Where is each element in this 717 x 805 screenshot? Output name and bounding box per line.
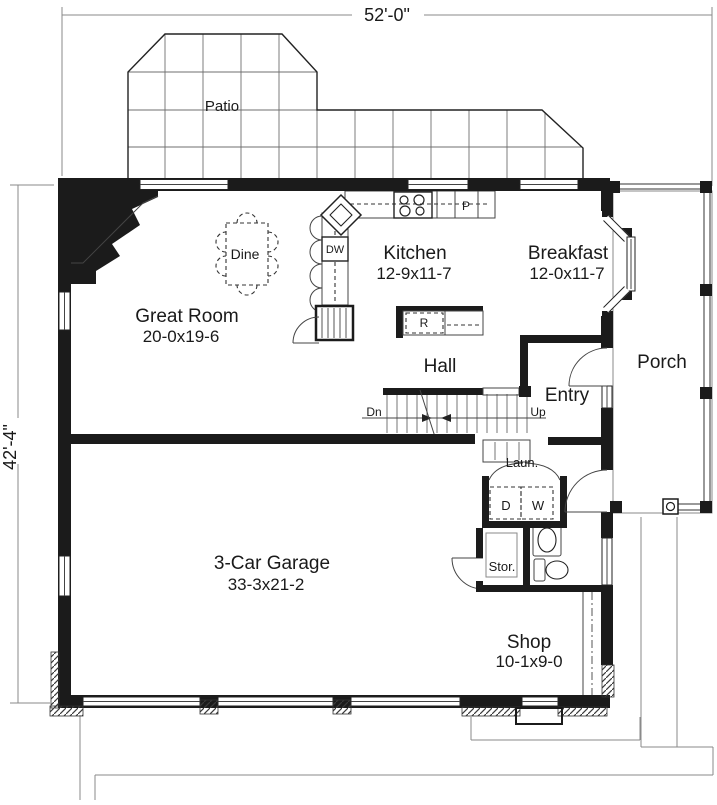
wall-entry-south: [548, 437, 607, 445]
window-great-room-west: [59, 292, 70, 330]
kitchen-size: 12-9x11-7: [376, 264, 451, 283]
stairs-up-label: Up: [530, 405, 546, 419]
cooktop: [394, 192, 432, 218]
front-door: [569, 348, 607, 386]
window-breakfast-north: [520, 180, 578, 190]
great-room-size: 20-0x19-6: [143, 327, 220, 346]
wall-entry-west: [520, 335, 528, 393]
wall-bath-south: [476, 585, 607, 592]
hall-label: Hall: [424, 356, 457, 377]
garage-door-3: [351, 697, 460, 706]
kitchen-label: Kitchen: [383, 243, 446, 264]
shop-partition: [583, 592, 592, 695]
wall-west: [58, 178, 71, 708]
sidelight-entry: [602, 386, 612, 408]
entry-label: Entry: [545, 385, 590, 406]
floor-plan-page: 52'-0" 42'-4" Patio Porch Great Room 20-…: [0, 0, 717, 800]
dryer-label: D: [501, 498, 510, 513]
dine-label: Dine: [231, 246, 260, 262]
patio-label: Patio: [205, 98, 239, 115]
stair-rail-wall: [383, 388, 483, 395]
laundry-label: Laun.: [506, 455, 539, 470]
patio: [124, 30, 586, 186]
fireplace: [71, 191, 158, 284]
garage-door-2: [218, 697, 333, 706]
wall-storage-west-upper: [476, 528, 483, 558]
doors: [565, 348, 607, 512]
bay-window-center: [627, 237, 635, 291]
breakfast-size: 12-0x11-7: [529, 264, 604, 283]
breakfast-label: Breakfast: [528, 243, 609, 264]
dimension-height-label: 42'-4": [0, 424, 20, 470]
stairs-down-label: Dn: [366, 405, 381, 419]
garage-label: 3-Car Garage: [214, 553, 330, 574]
stair-arrow-up: [441, 414, 451, 422]
floor-plan-drawing: 52'-0" 42'-4" Patio Porch Great Room 20-…: [0, 0, 717, 800]
shop-label: Shop: [507, 632, 551, 653]
dimension-width-label: 52'-0": [364, 5, 410, 25]
wall-laundry-west: [482, 476, 489, 528]
window-garage-west: [59, 556, 70, 596]
window-great-room-north: [140, 180, 228, 190]
garage-size: 33-3x21-2: [228, 575, 305, 594]
dishwasher-label: DW: [326, 244, 345, 256]
kitchen-sink: [321, 195, 361, 235]
pantry-label: P: [462, 199, 470, 213]
bar-stools: [310, 216, 322, 312]
window-kitchen-north: [408, 180, 468, 190]
wall-garage-north: [70, 434, 475, 444]
rear-door: [565, 470, 607, 512]
walkways: [80, 517, 713, 800]
toilet-bowl: [546, 561, 568, 579]
window-bath-east: [602, 538, 612, 585]
toilet-tank: [534, 559, 545, 581]
storage-label: Stor.: [489, 559, 516, 574]
washer-label: W: [532, 498, 545, 513]
range-label: R: [420, 316, 429, 330]
great-room-label: Great Room: [135, 306, 238, 327]
patio-grid: [124, 30, 586, 186]
garage-door-1: [83, 697, 200, 706]
porch-label: Porch: [637, 352, 687, 373]
porch-column: [663, 499, 678, 514]
staircase: [362, 386, 546, 462]
wall-entry-north: [520, 335, 613, 343]
wall-storage-east: [523, 528, 530, 592]
shop-size: 10-1x9-0: [495, 652, 562, 671]
window-shop-south: [522, 697, 558, 706]
shop-steps: [516, 708, 562, 724]
cooktop-burners: [400, 195, 424, 216]
wall-laundry-south: [482, 521, 567, 528]
